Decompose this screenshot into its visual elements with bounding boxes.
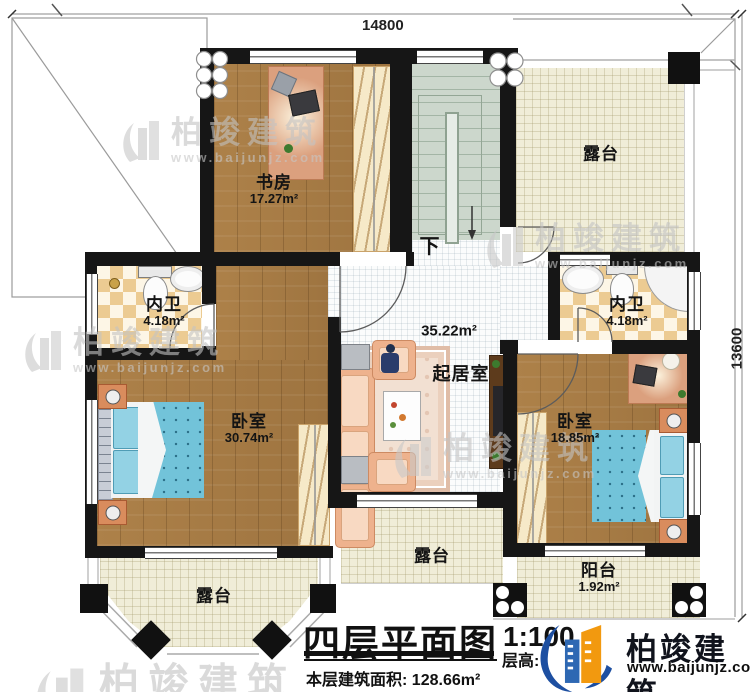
stairs-down-label: 下 (420, 236, 441, 258)
floor-plan: 14800 13600 (0, 0, 750, 692)
living-room-area-label: 35.22m² (421, 324, 477, 341)
room-name: 起居室 (433, 364, 490, 384)
stairs-direction: 下 (420, 236, 441, 258)
room-name: 书房 (250, 173, 298, 192)
room-name: 卧室 (551, 412, 599, 431)
room-name: 阳台 (578, 561, 619, 580)
room-name: 内卫 (143, 295, 184, 314)
title-rule (304, 651, 494, 656)
room-label-bedroom-left: 卧室 30.74m² (225, 412, 273, 446)
room-label-bath-left: 内卫 4.18m² (143, 295, 184, 329)
room-area: 4.18m² (606, 314, 647, 329)
room-name: 内卫 (606, 295, 647, 314)
title-rule (304, 659, 497, 661)
room-name: 露台 (583, 144, 619, 163)
room-area: 35.22m² (421, 324, 477, 341)
dimension-right: 13600 (728, 328, 745, 370)
room-area: 18.85m² (551, 431, 599, 446)
door-swings (0, 0, 750, 692)
room-name: 露台 (414, 546, 450, 565)
room-name: 卧室 (225, 412, 273, 431)
logo-url: www.baijunjz.com (627, 659, 750, 676)
room-label-living: 起居室 (433, 364, 490, 384)
logo-company-name: 柏竣建筑 (626, 624, 750, 692)
logo-icon (528, 616, 620, 692)
room-area: 17.27m² (250, 192, 298, 207)
room-label-terrace-bottom: 露台 (196, 586, 232, 605)
room-name: 露台 (196, 586, 232, 605)
floor-area-value: 128.66m² (412, 672, 481, 689)
room-label-bath-right: 内卫 4.18m² (606, 295, 647, 329)
room-label-study: 书房 17.27m² (250, 173, 298, 207)
room-area: 4.18m² (143, 314, 184, 329)
room-label-balcony: 阳台 1.92m² (578, 561, 619, 595)
floor-area-label: 本层建筑面积: 128.66m² (306, 666, 480, 690)
room-area: 1.92m² (578, 580, 619, 595)
dimension-top: 14800 (362, 17, 404, 34)
floor-area-caption: 本层建筑面积: (306, 672, 407, 689)
room-label-terrace-top: 露台 (583, 144, 619, 163)
room-label-terrace-middle: 露台 (414, 546, 450, 565)
room-label-bedroom-right: 卧室 18.85m² (551, 412, 599, 446)
room-area: 30.74m² (225, 431, 273, 446)
